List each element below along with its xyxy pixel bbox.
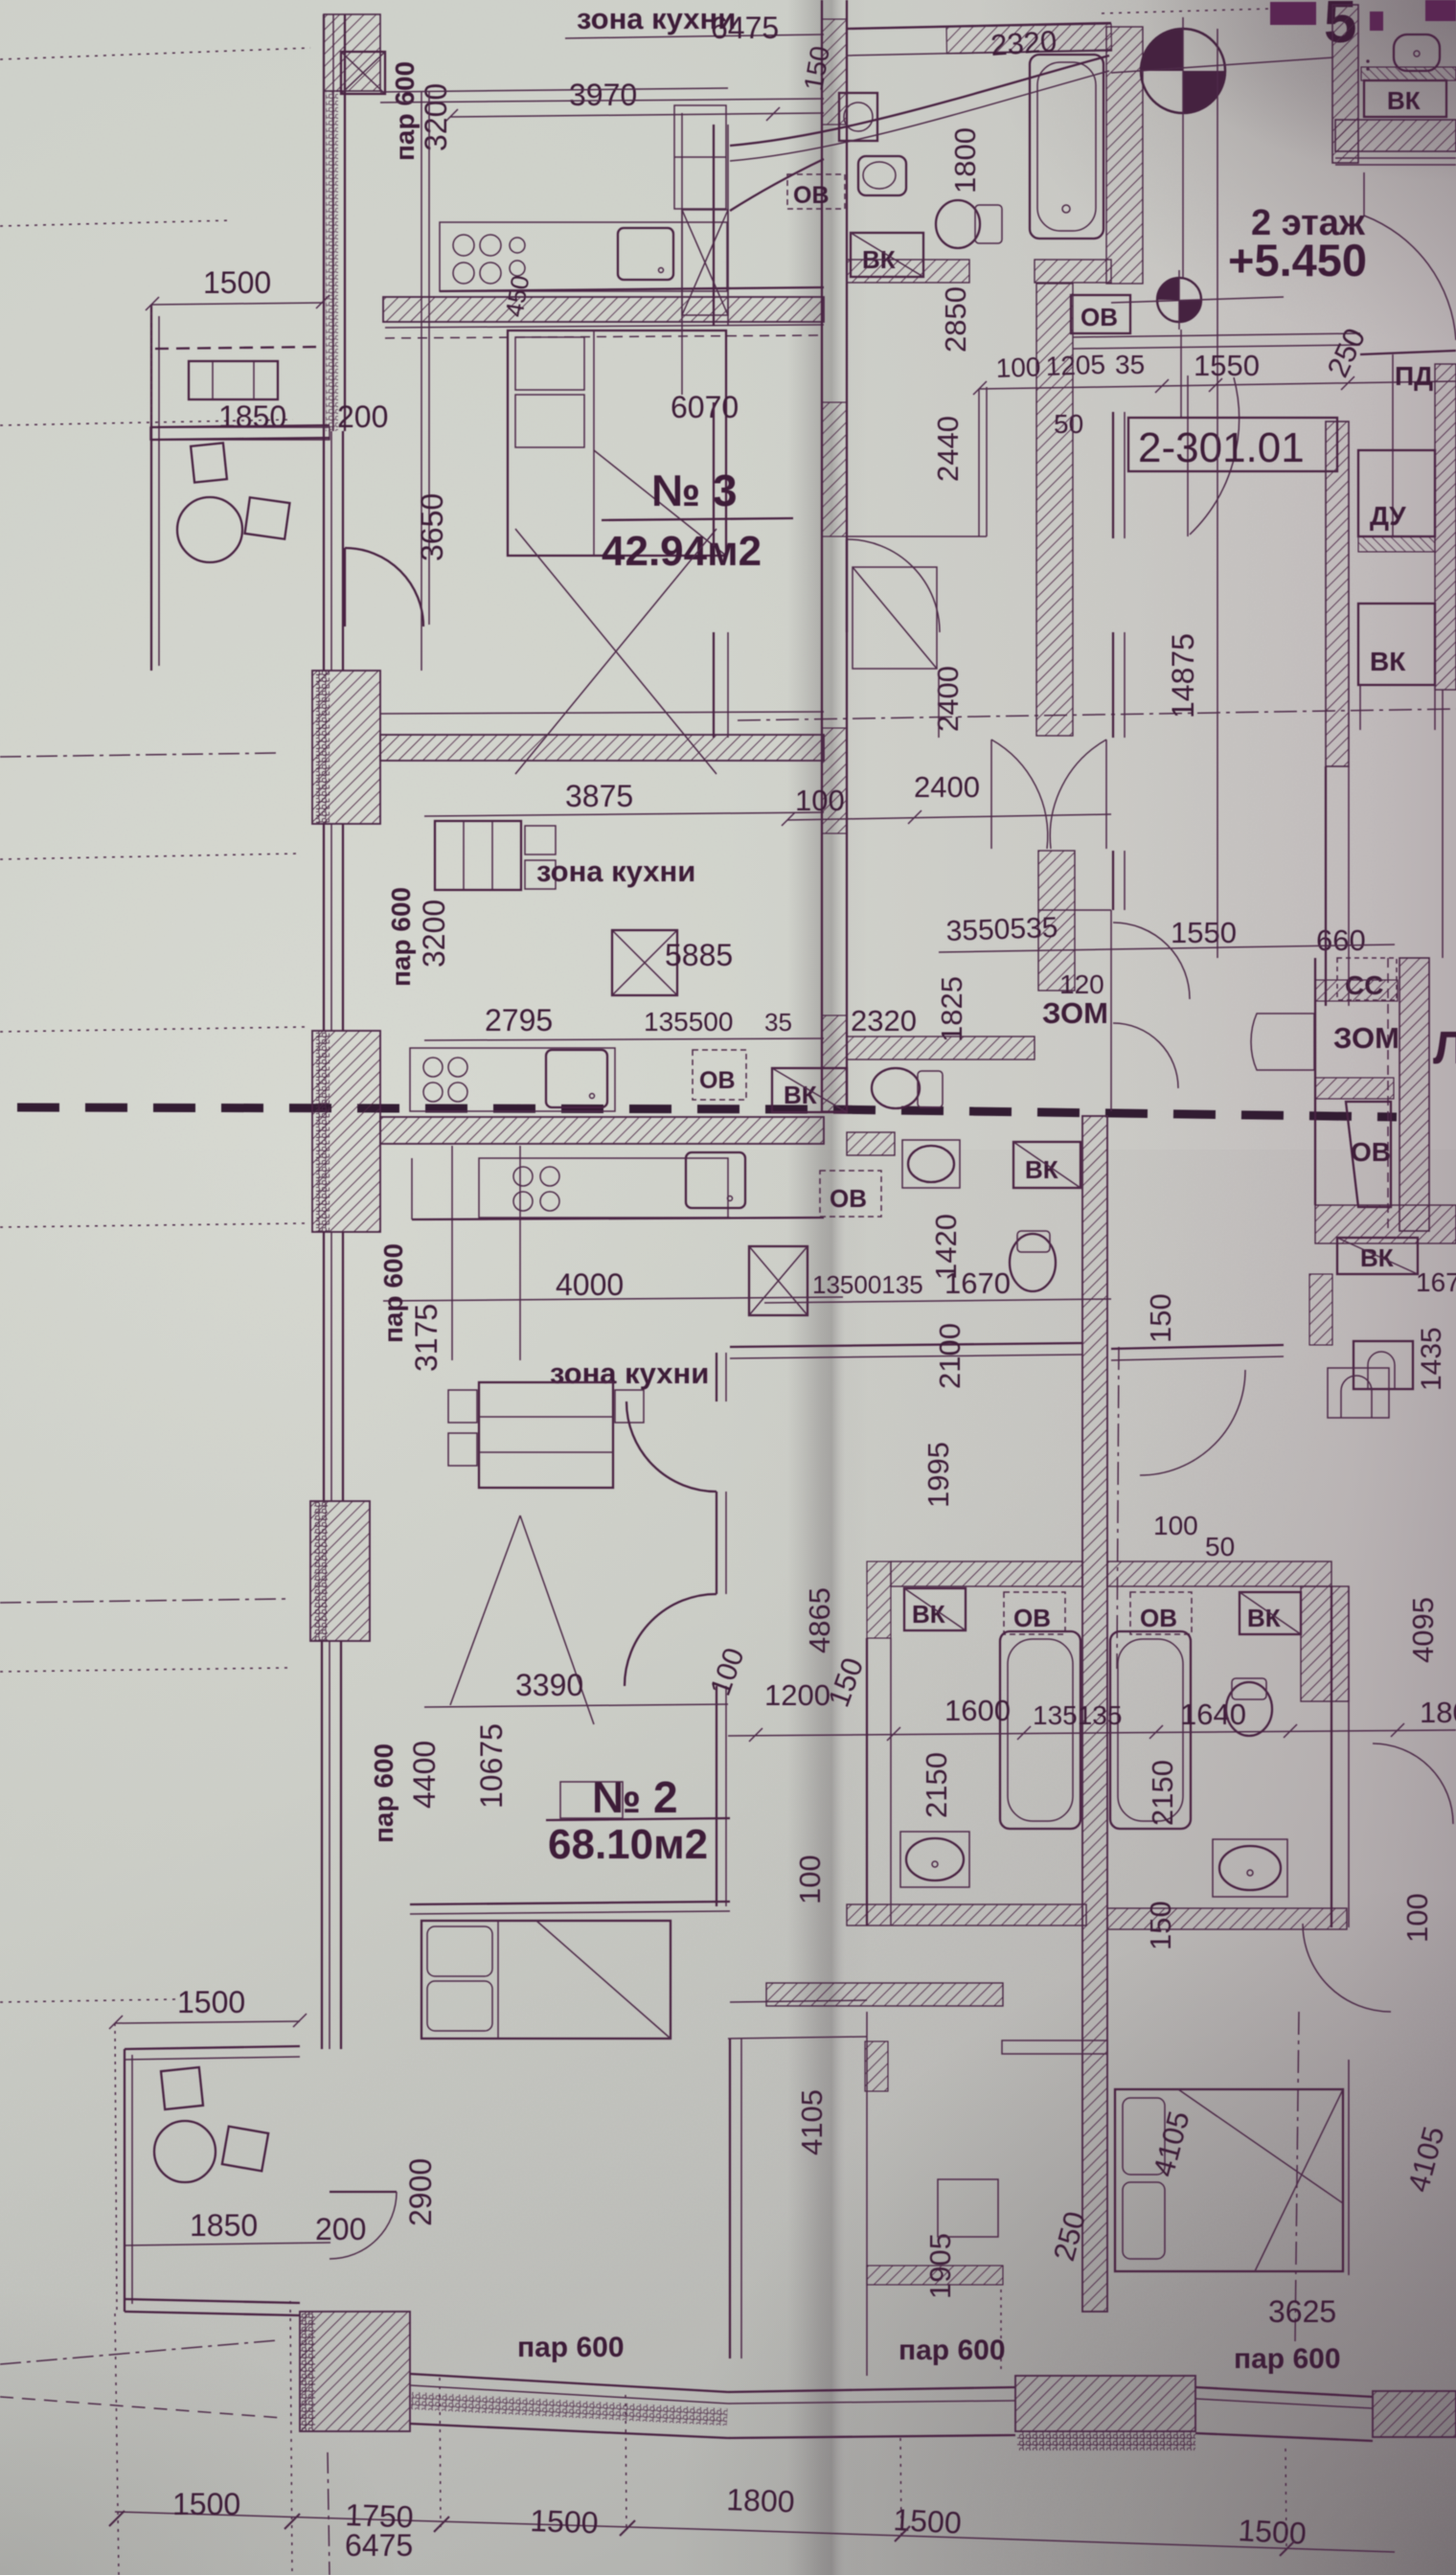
svg-text:1995: 1995 [921,1442,955,1508]
svg-text:1600: 1600 [944,1694,1011,1727]
svg-text:4095: 4095 [1406,1597,1440,1663]
svg-text:2850: 2850 [939,286,972,353]
svg-text:42.94м2: 42.94м2 [602,528,762,575]
svg-text:6475: 6475 [711,11,779,45]
svg-text:2320: 2320 [990,24,1058,62]
svg-text:2-301.01: 2-301.01 [1138,424,1305,471]
svg-text:5885: 5885 [665,938,733,972]
svg-text:6070: 6070 [671,390,739,424]
svg-text:68.10м2: 68.10м2 [548,1821,708,1868]
svg-text:167: 167 [1416,1267,1456,1297]
svg-text:2100: 2100 [933,1323,967,1389]
svg-text:180: 180 [1420,1696,1456,1729]
svg-text:1500: 1500 [530,2503,599,2540]
svg-text:120: 120 [1059,969,1104,999]
svg-text:1550: 1550 [1171,916,1237,949]
svg-text:1200: 1200 [764,1678,830,1712]
svg-text:2320: 2320 [851,1004,917,1037]
svg-text:пар 600: пар 600 [369,1743,398,1843]
svg-text:135135: 135135 [1033,1700,1122,1730]
svg-text:100: 100 [1153,1511,1198,1540]
svg-text:3390: 3390 [515,1668,583,1702]
svg-text:1500: 1500 [177,1985,245,2019]
svg-text:660: 660 [1316,923,1366,957]
svg-text:Л: Л [1433,1023,1456,1074]
svg-text:ОВ: ОВ [699,1067,736,1094]
svg-text:4865: 4865 [803,1587,836,1653]
svg-text:2400: 2400 [931,666,965,732]
svg-text:ОВ: ОВ [1140,1604,1177,1632]
svg-text:3550535: 3550535 [945,912,1058,947]
svg-text:135500: 135500 [644,1007,733,1037]
svg-text:150: 150 [1144,1901,1177,1950]
svg-text:2900: 2900 [403,2158,438,2226]
svg-text:ОВ: ОВ [830,1184,867,1213]
svg-text:ЗОМ: ЗОМ [1042,996,1108,1030]
svg-text:ДУ: ДУ [1370,501,1406,531]
svg-text:200: 200 [337,399,388,434]
svg-text:ОВ: ОВ [1081,303,1118,331]
svg-text:ЗОМ: ЗОМ [1333,1021,1399,1055]
svg-text:№ 3: № 3 [651,466,738,515]
svg-text:1550: 1550 [1194,349,1260,382]
svg-text:ОВ: ОВ [793,182,830,209]
svg-text:4400: 4400 [407,1741,442,1809]
svg-text:пар 600: пар 600 [899,2335,1006,2366]
svg-text:ВК: ВК [1387,86,1421,115]
svg-text:100: 100 [1400,1893,1434,1943]
svg-text:ВК: ВК [1360,1243,1394,1272]
svg-text:1800: 1800 [948,127,982,194]
svg-text:100: 100 [795,784,845,817]
svg-text:1500: 1500 [203,265,271,300]
svg-text:3200: 3200 [417,900,451,968]
svg-text:пар 600: пар 600 [1234,2343,1341,2375]
svg-text:1670: 1670 [944,1266,1011,1300]
svg-text:пар 600: пар 600 [517,2332,625,2363]
svg-text:зона кухни: зона кухни [536,855,695,888]
svg-text:ПД: ПД [1395,361,1433,391]
svg-text:1850: 1850 [218,399,286,434]
svg-text:35: 35 [1115,350,1145,379]
svg-text:ОВ: ОВ [1351,1137,1391,1167]
svg-text:14875: 14875 [1166,633,1200,718]
svg-text:пар 600: пар 600 [386,887,416,987]
svg-text:4105: 4105 [795,2089,829,2155]
svg-text:2150: 2150 [1146,1760,1179,1826]
svg-text:50: 50 [1205,1532,1235,1561]
svg-text:пар 600: пар 600 [390,61,420,161]
svg-text:2400: 2400 [914,770,980,804]
svg-text:3650: 3650 [415,493,449,561]
svg-text:ВК: ВК [1370,647,1406,676]
svg-text:100: 100 [793,1855,827,1904]
svg-text:2795: 2795 [485,1003,553,1037]
svg-text:1500: 1500 [172,2487,240,2521]
svg-text:ВК: ВК [912,1600,945,1629]
svg-text:150: 150 [1144,1293,1177,1343]
svg-text:1640: 1640 [1180,1698,1246,1731]
svg-text:10675: 10675 [474,1723,509,1809]
svg-text:1850: 1850 [190,2208,258,2243]
svg-text:зона кухни: зона кухни [550,1356,709,1390]
svg-text:ВК: ВК [1247,1604,1281,1632]
svg-text:№ 2: № 2 [592,1772,678,1822]
svg-text:35: 35 [764,1008,792,1037]
svg-text:2150: 2150 [920,1752,953,1818]
svg-text:1500: 1500 [1238,2513,1308,2551]
svg-text:200: 200 [315,2212,366,2246]
svg-text:3970: 3970 [569,78,637,112]
svg-text:1825: 1825 [935,976,968,1042]
svg-text:1800: 1800 [726,2482,795,2518]
svg-text:3625: 3625 [1268,2294,1336,2329]
svg-text:1435: 1435 [1416,1327,1447,1391]
svg-text:100: 100 [995,352,1041,383]
svg-text:3875: 3875 [565,779,633,813]
svg-text:6475: 6475 [345,2528,413,2563]
svg-text:13500135: 13500135 [812,1270,923,1299]
svg-text:3200: 3200 [419,83,453,151]
svg-text:4000: 4000 [556,1267,624,1302]
svg-text:пар 600: пар 600 [378,1243,408,1343]
svg-text:ОВ: ОВ [1013,1604,1051,1632]
svg-text:2440: 2440 [931,416,965,482]
svg-text:3175: 3175 [409,1304,444,1372]
svg-text:+5.450: +5.450 [1228,235,1367,285]
